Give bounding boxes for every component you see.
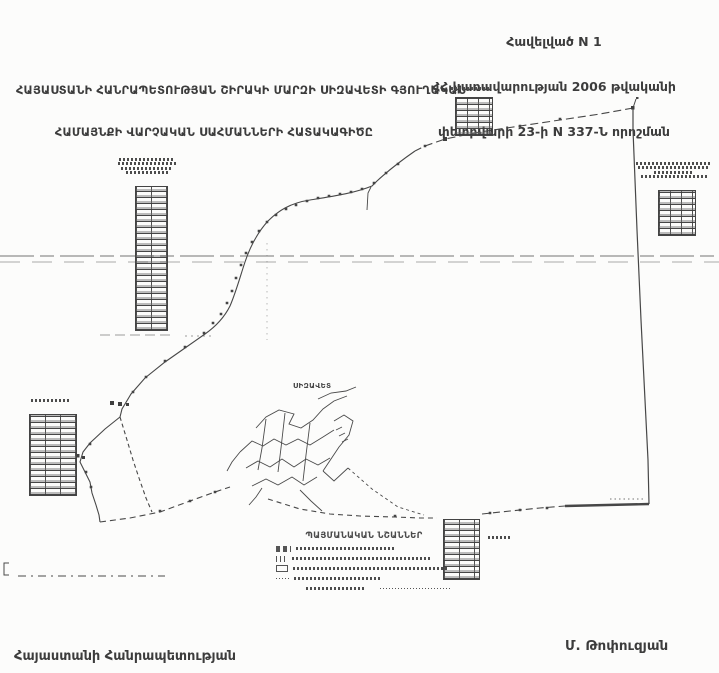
legend-title: ՊԱՅՄԱՆԱԿԱՆ ՆՇԱՆՆԵՐ xyxy=(276,531,452,541)
illegible-text-line xyxy=(126,171,168,174)
scan-fold-lines xyxy=(0,243,719,340)
illegible-text-line xyxy=(451,87,489,90)
illegible-text-line xyxy=(119,158,175,161)
signature-name: Մ. Թոփուզյան xyxy=(565,638,668,654)
ticked-line-symbol-icon xyxy=(276,556,287,562)
stamp-top-label xyxy=(448,85,492,91)
illegible-text-line xyxy=(636,162,712,165)
illegible-text-line xyxy=(641,175,707,178)
land-list-table-stamp-lowerleft xyxy=(29,414,77,496)
scanned-map-document: Հավելված N 1 ՀՀ կառավարության 2006 թվակա… xyxy=(0,0,719,673)
illegible-text-line xyxy=(118,162,176,165)
legend-row xyxy=(276,544,452,553)
illegible-text-line xyxy=(638,166,710,169)
boundary-line-symbol-icon xyxy=(276,546,291,552)
illegible-legend-text xyxy=(294,577,382,580)
illegible-legend-text xyxy=(296,547,396,550)
illegible-text-line xyxy=(654,171,694,174)
area-outline-symbol-icon xyxy=(276,565,288,572)
legend-row xyxy=(276,554,452,563)
signatory-line1: Հայաստանի Հանրապետության xyxy=(14,648,251,666)
land-balance-table-stamp-right xyxy=(658,190,696,236)
dotted-line-symbol-icon xyxy=(276,578,289,580)
settlement-label: ՍԻԶԱՎԵՏ xyxy=(293,382,363,390)
illegible-text-line xyxy=(488,536,510,539)
illegible-text-line xyxy=(121,167,173,170)
legend-row xyxy=(276,574,452,583)
legend-spacer xyxy=(276,585,291,592)
illegible-legend-text xyxy=(306,587,366,590)
settlement-street-sketch xyxy=(227,387,424,515)
illegible-legend-text xyxy=(292,557,430,560)
stamp-left-heading xyxy=(116,156,178,176)
stamp-lowerleft-label xyxy=(31,397,75,403)
legend: ՊԱՅՄԱՆԱԿԱՆ ՆՇԱՆՆԵՐ xyxy=(276,531,452,593)
legend-row xyxy=(276,564,452,573)
dotted-leader-icon xyxy=(380,588,450,590)
land-balance-table-stamp-top xyxy=(455,97,493,136)
land-list-table-stamp-left xyxy=(135,186,168,331)
margin-marks xyxy=(4,563,165,576)
illegible-legend-text xyxy=(293,567,448,570)
legend-row xyxy=(276,584,452,593)
signatory-title-block: Հայաստանի Հանրապետության կառավարության ա… xyxy=(14,612,251,673)
stamp-right-heading xyxy=(633,160,715,180)
illegible-text-line xyxy=(31,399,71,402)
